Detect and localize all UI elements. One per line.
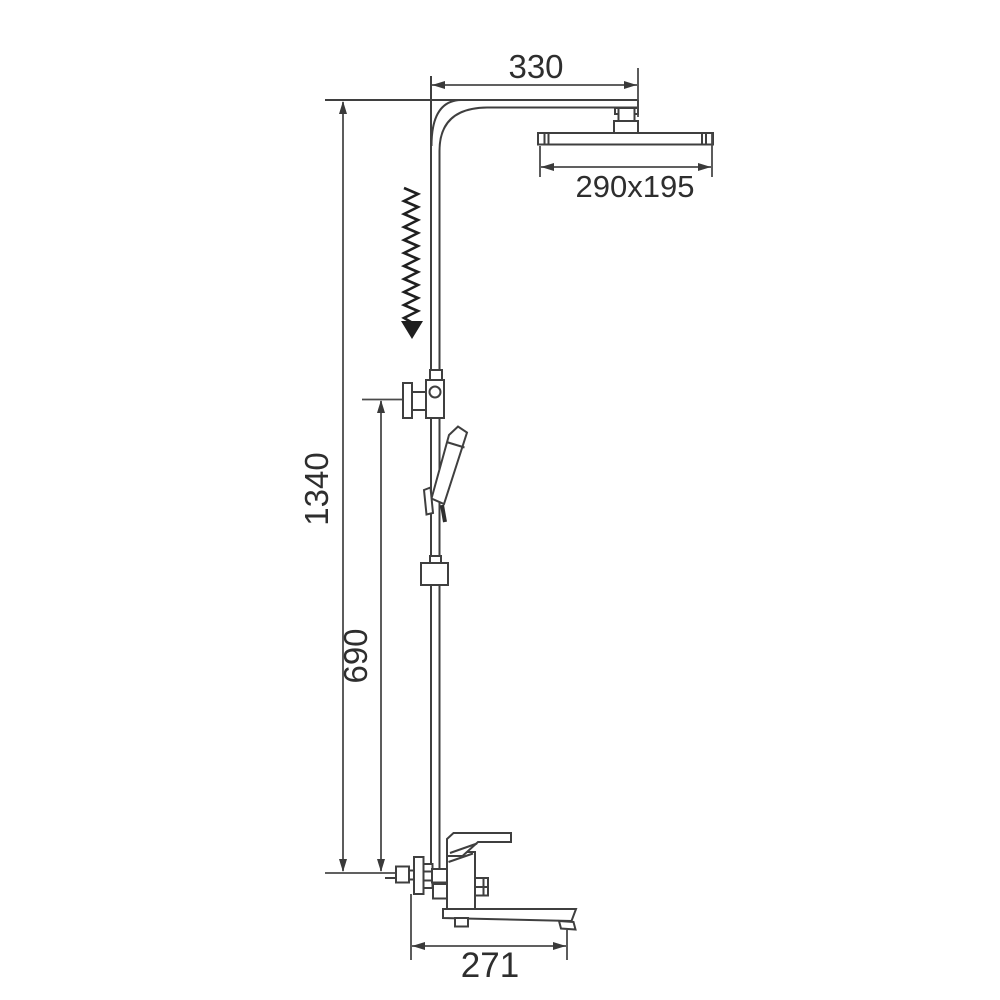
dim-spout-reach-label: 271 xyxy=(461,946,519,985)
head-plate xyxy=(538,133,713,145)
mixer xyxy=(443,833,576,930)
dim-arrow-icon xyxy=(377,400,385,413)
union-lower-block xyxy=(433,884,447,899)
dim-arm-reach-label: 330 xyxy=(508,48,563,85)
dim-total-height: 1340 xyxy=(298,101,347,872)
shower-column-technical-drawing: 330 290x195 1340 690 271 xyxy=(0,0,1000,1000)
dim-arrow-icon xyxy=(339,859,347,872)
dim-arrow-icon xyxy=(432,81,445,89)
union-flange xyxy=(414,857,424,894)
dim-head-size-label: 290x195 xyxy=(576,169,695,204)
slider-collar xyxy=(430,370,442,380)
slider-bracket xyxy=(362,370,444,418)
slider-pivot xyxy=(430,387,441,398)
slider-knob-stem xyxy=(412,392,426,410)
dim-slide-bar-height: 690 xyxy=(337,400,385,872)
head-stem xyxy=(619,108,635,121)
dim-arrow-icon xyxy=(624,81,637,89)
hose-nipple xyxy=(442,505,445,522)
dim-arrow-icon xyxy=(377,859,385,872)
drawing-canvas: 330 290x195 1340 690 271 xyxy=(0,0,1000,1000)
rain-shower-head xyxy=(538,108,713,145)
slider-knob xyxy=(403,383,412,418)
hand-shower-wand xyxy=(432,427,468,505)
dim-arrow-icon xyxy=(412,942,425,950)
zigzag-arrowhead-icon xyxy=(401,321,423,339)
dim-arrow-icon xyxy=(541,163,554,171)
dim-arrow-icon xyxy=(553,942,566,950)
mixer-handle xyxy=(447,833,511,856)
hose-connector-block xyxy=(421,556,448,585)
union-coupler xyxy=(432,869,447,883)
union-knob xyxy=(396,867,409,883)
dim-arrow-icon xyxy=(698,163,711,171)
aerator xyxy=(559,921,576,930)
hand-shower-holder xyxy=(424,488,433,515)
connector-body xyxy=(421,563,448,585)
dim-slide-bar-height-label: 690 xyxy=(337,628,374,683)
dim-total-height-label: 1340 xyxy=(298,452,335,525)
spout-foot xyxy=(455,918,468,927)
dim-arrow-icon xyxy=(339,101,347,114)
dim-spout-reach: 271 xyxy=(411,894,567,985)
height-adjust-arrow xyxy=(401,188,423,339)
